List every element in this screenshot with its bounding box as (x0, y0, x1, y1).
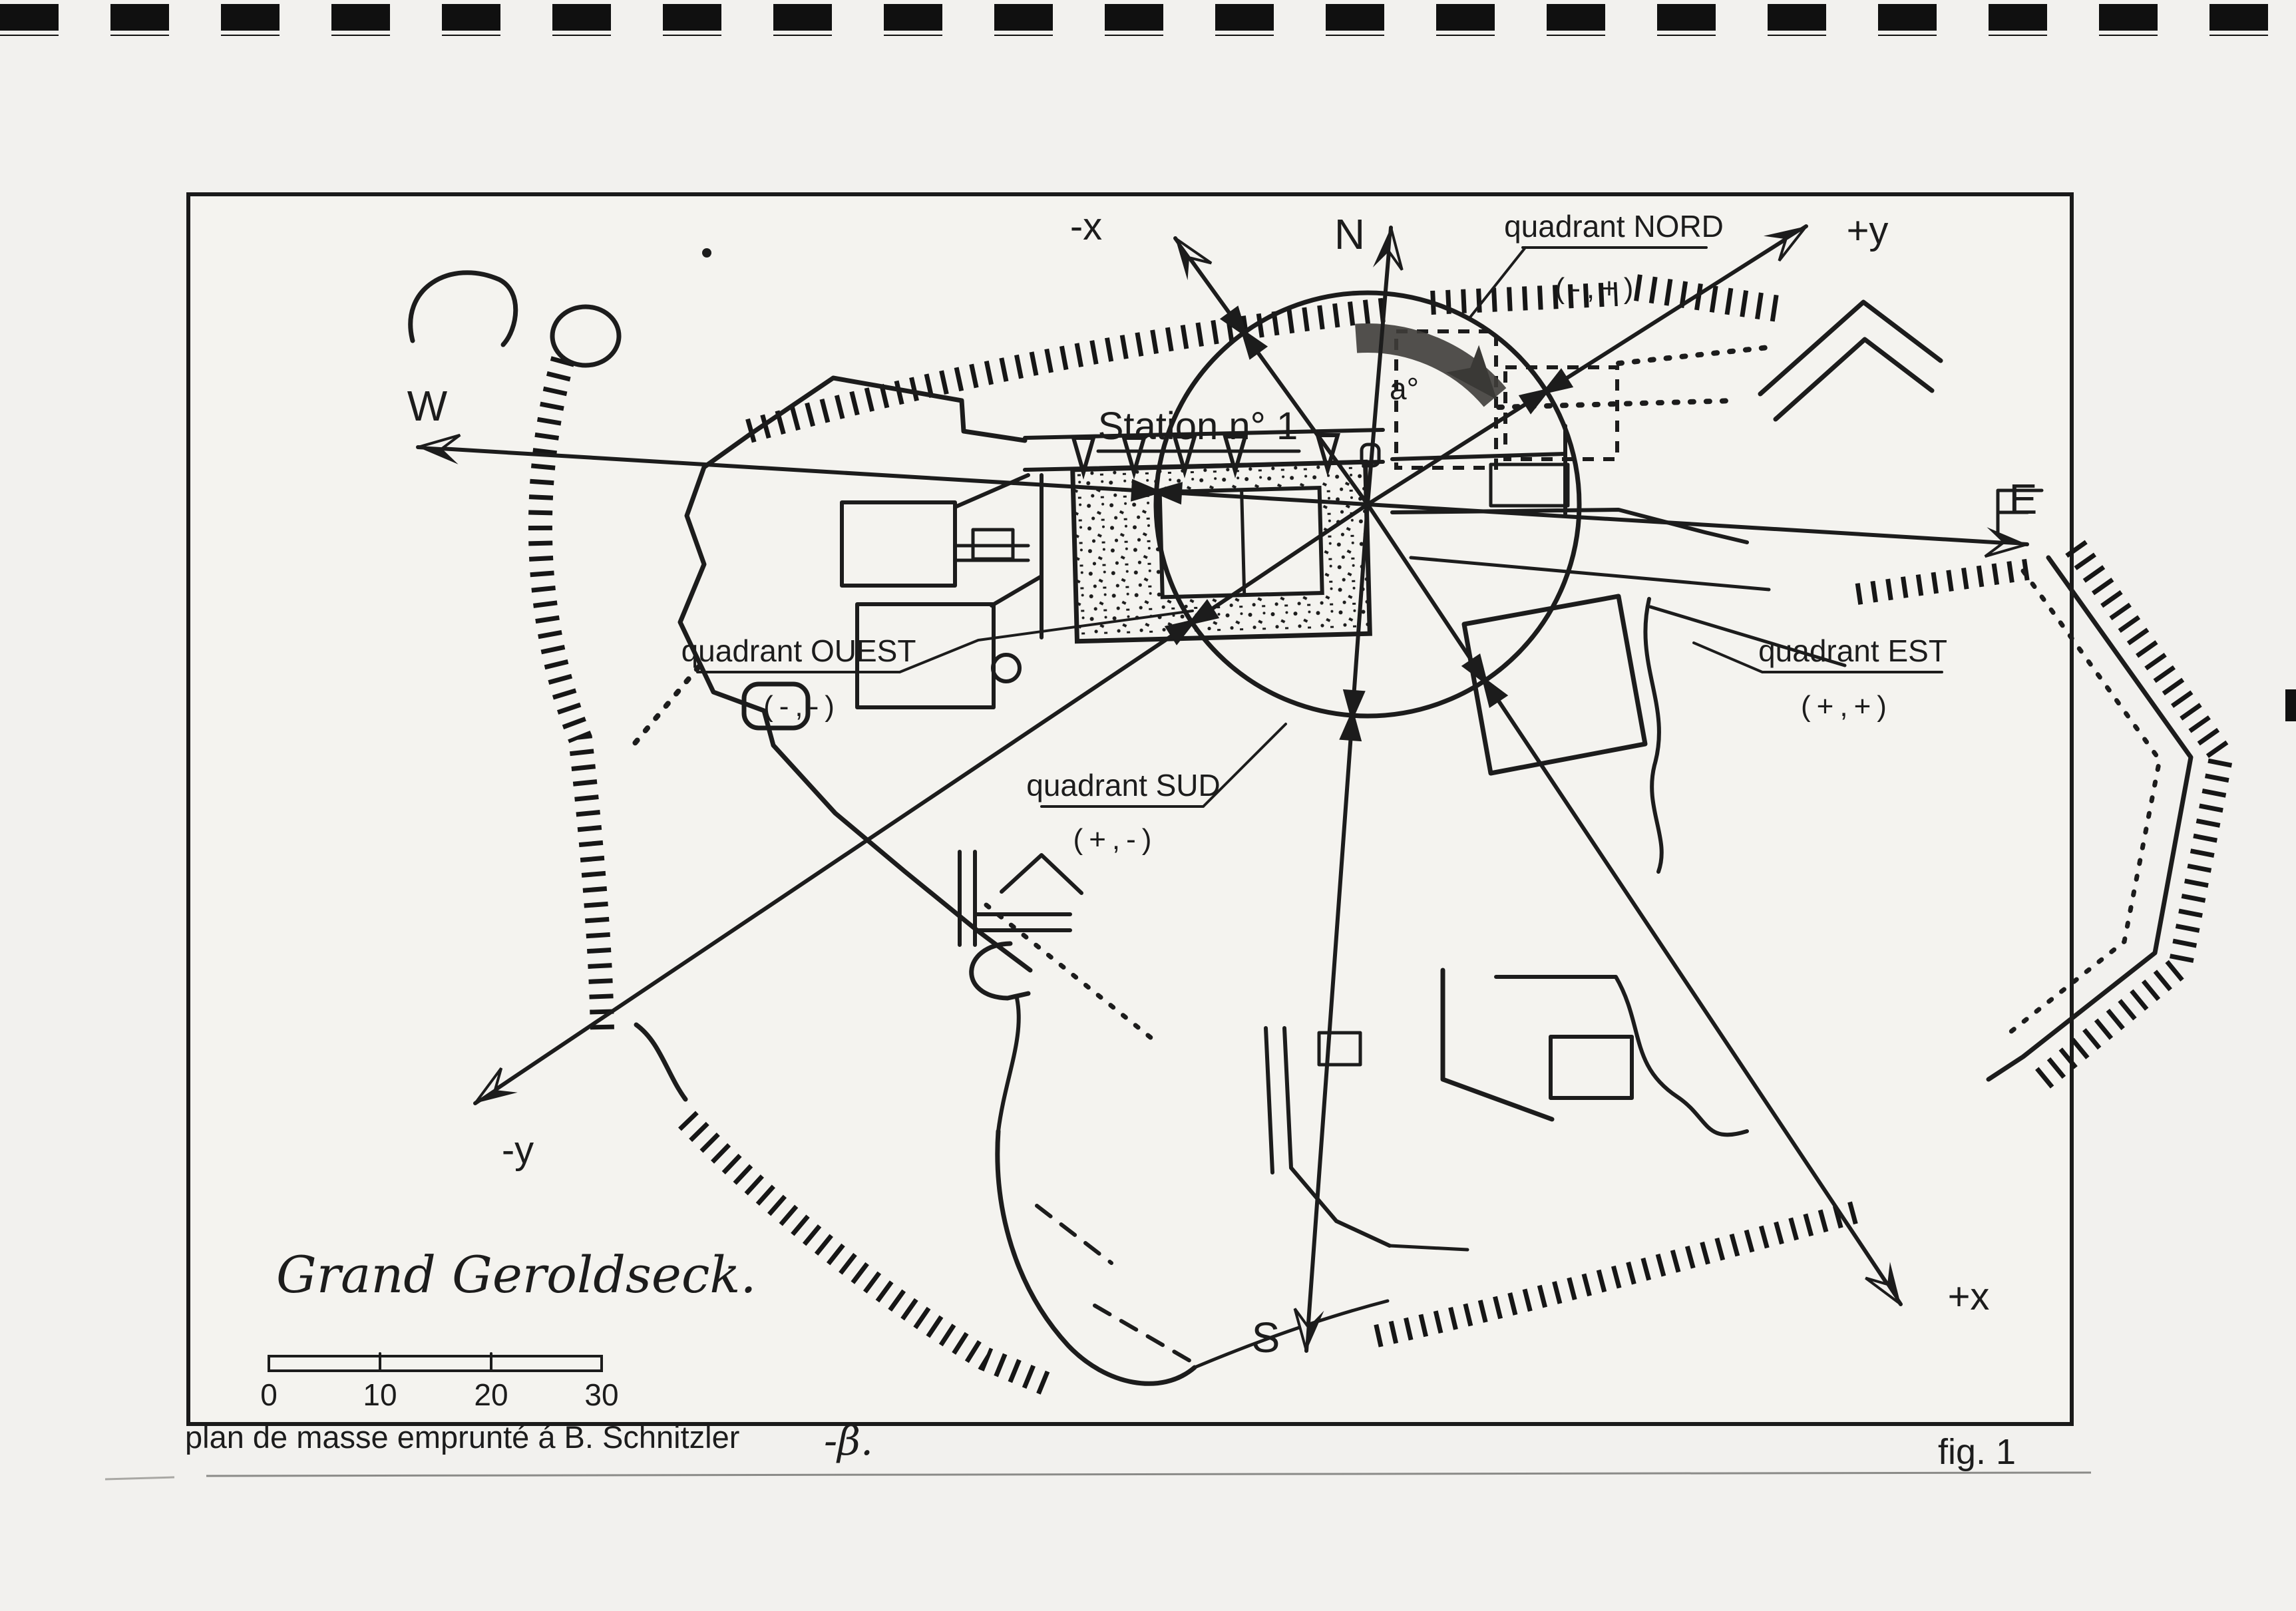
axis-label-west: W (407, 382, 448, 430)
scale-tick-30: 30 (584, 1377, 618, 1412)
axis-label-minus-x: -x (1070, 205, 1102, 248)
plan-title: Grand Geroldseck. (276, 1245, 757, 1304)
caption-rule-left (105, 1477, 174, 1479)
axis-label-plus-x: +x (1948, 1275, 1990, 1318)
axis-label-plus-y: +y (1847, 209, 1889, 252)
quadrant-nord-label: quadrant NORD (1504, 209, 1724, 244)
scanned-page: -x N +y W E -y S +x quadrant NORD (-,+) … (0, 0, 2296, 1611)
caption-rule (206, 1473, 2091, 1476)
page-edge-mark (2285, 689, 2296, 721)
figure-caption: plan de masse emprunté á B. Schnitzler (185, 1419, 739, 1455)
angle-label: a° (1390, 371, 1419, 406)
figure-canvas: -x N +y W E -y S +x quadrant NORD (-,+) … (0, 0, 2296, 1611)
axis-label-minus-y: -y (502, 1129, 534, 1172)
binding-dash-strip (0, 4, 2296, 36)
scale-tick-0: 0 (260, 1377, 278, 1412)
scale-tick-20: 20 (474, 1377, 508, 1412)
figure-number: fig. 1 (1938, 1432, 2016, 1472)
scale-bar-body (269, 1356, 602, 1371)
small-dot (702, 248, 711, 258)
quadrant-sud-sign: (+,-) (1073, 823, 1158, 856)
figure-frame (188, 194, 2072, 1424)
quadrant-est-sign: (+,+) (1801, 690, 1893, 723)
axis-label-north: N (1334, 210, 1365, 258)
axis-label-south: S (1252, 1314, 1280, 1361)
quadrant-ouest-label: quadrant OUEST (681, 633, 916, 668)
signature: -β. (824, 1418, 873, 1465)
quadrant-nord-sign: (-,+) (1555, 272, 1640, 305)
scale-tick-10: 10 (363, 1377, 397, 1412)
quadrant-sud-label: quadrant SUD (1026, 768, 1221, 803)
station-label: Station n° 1 (1098, 405, 1298, 448)
axis-label-east: E (2009, 475, 2038, 523)
quadrant-ouest-sign: (-,-) (763, 690, 841, 723)
quadrant-est-label: quadrant EST (1758, 633, 1947, 668)
